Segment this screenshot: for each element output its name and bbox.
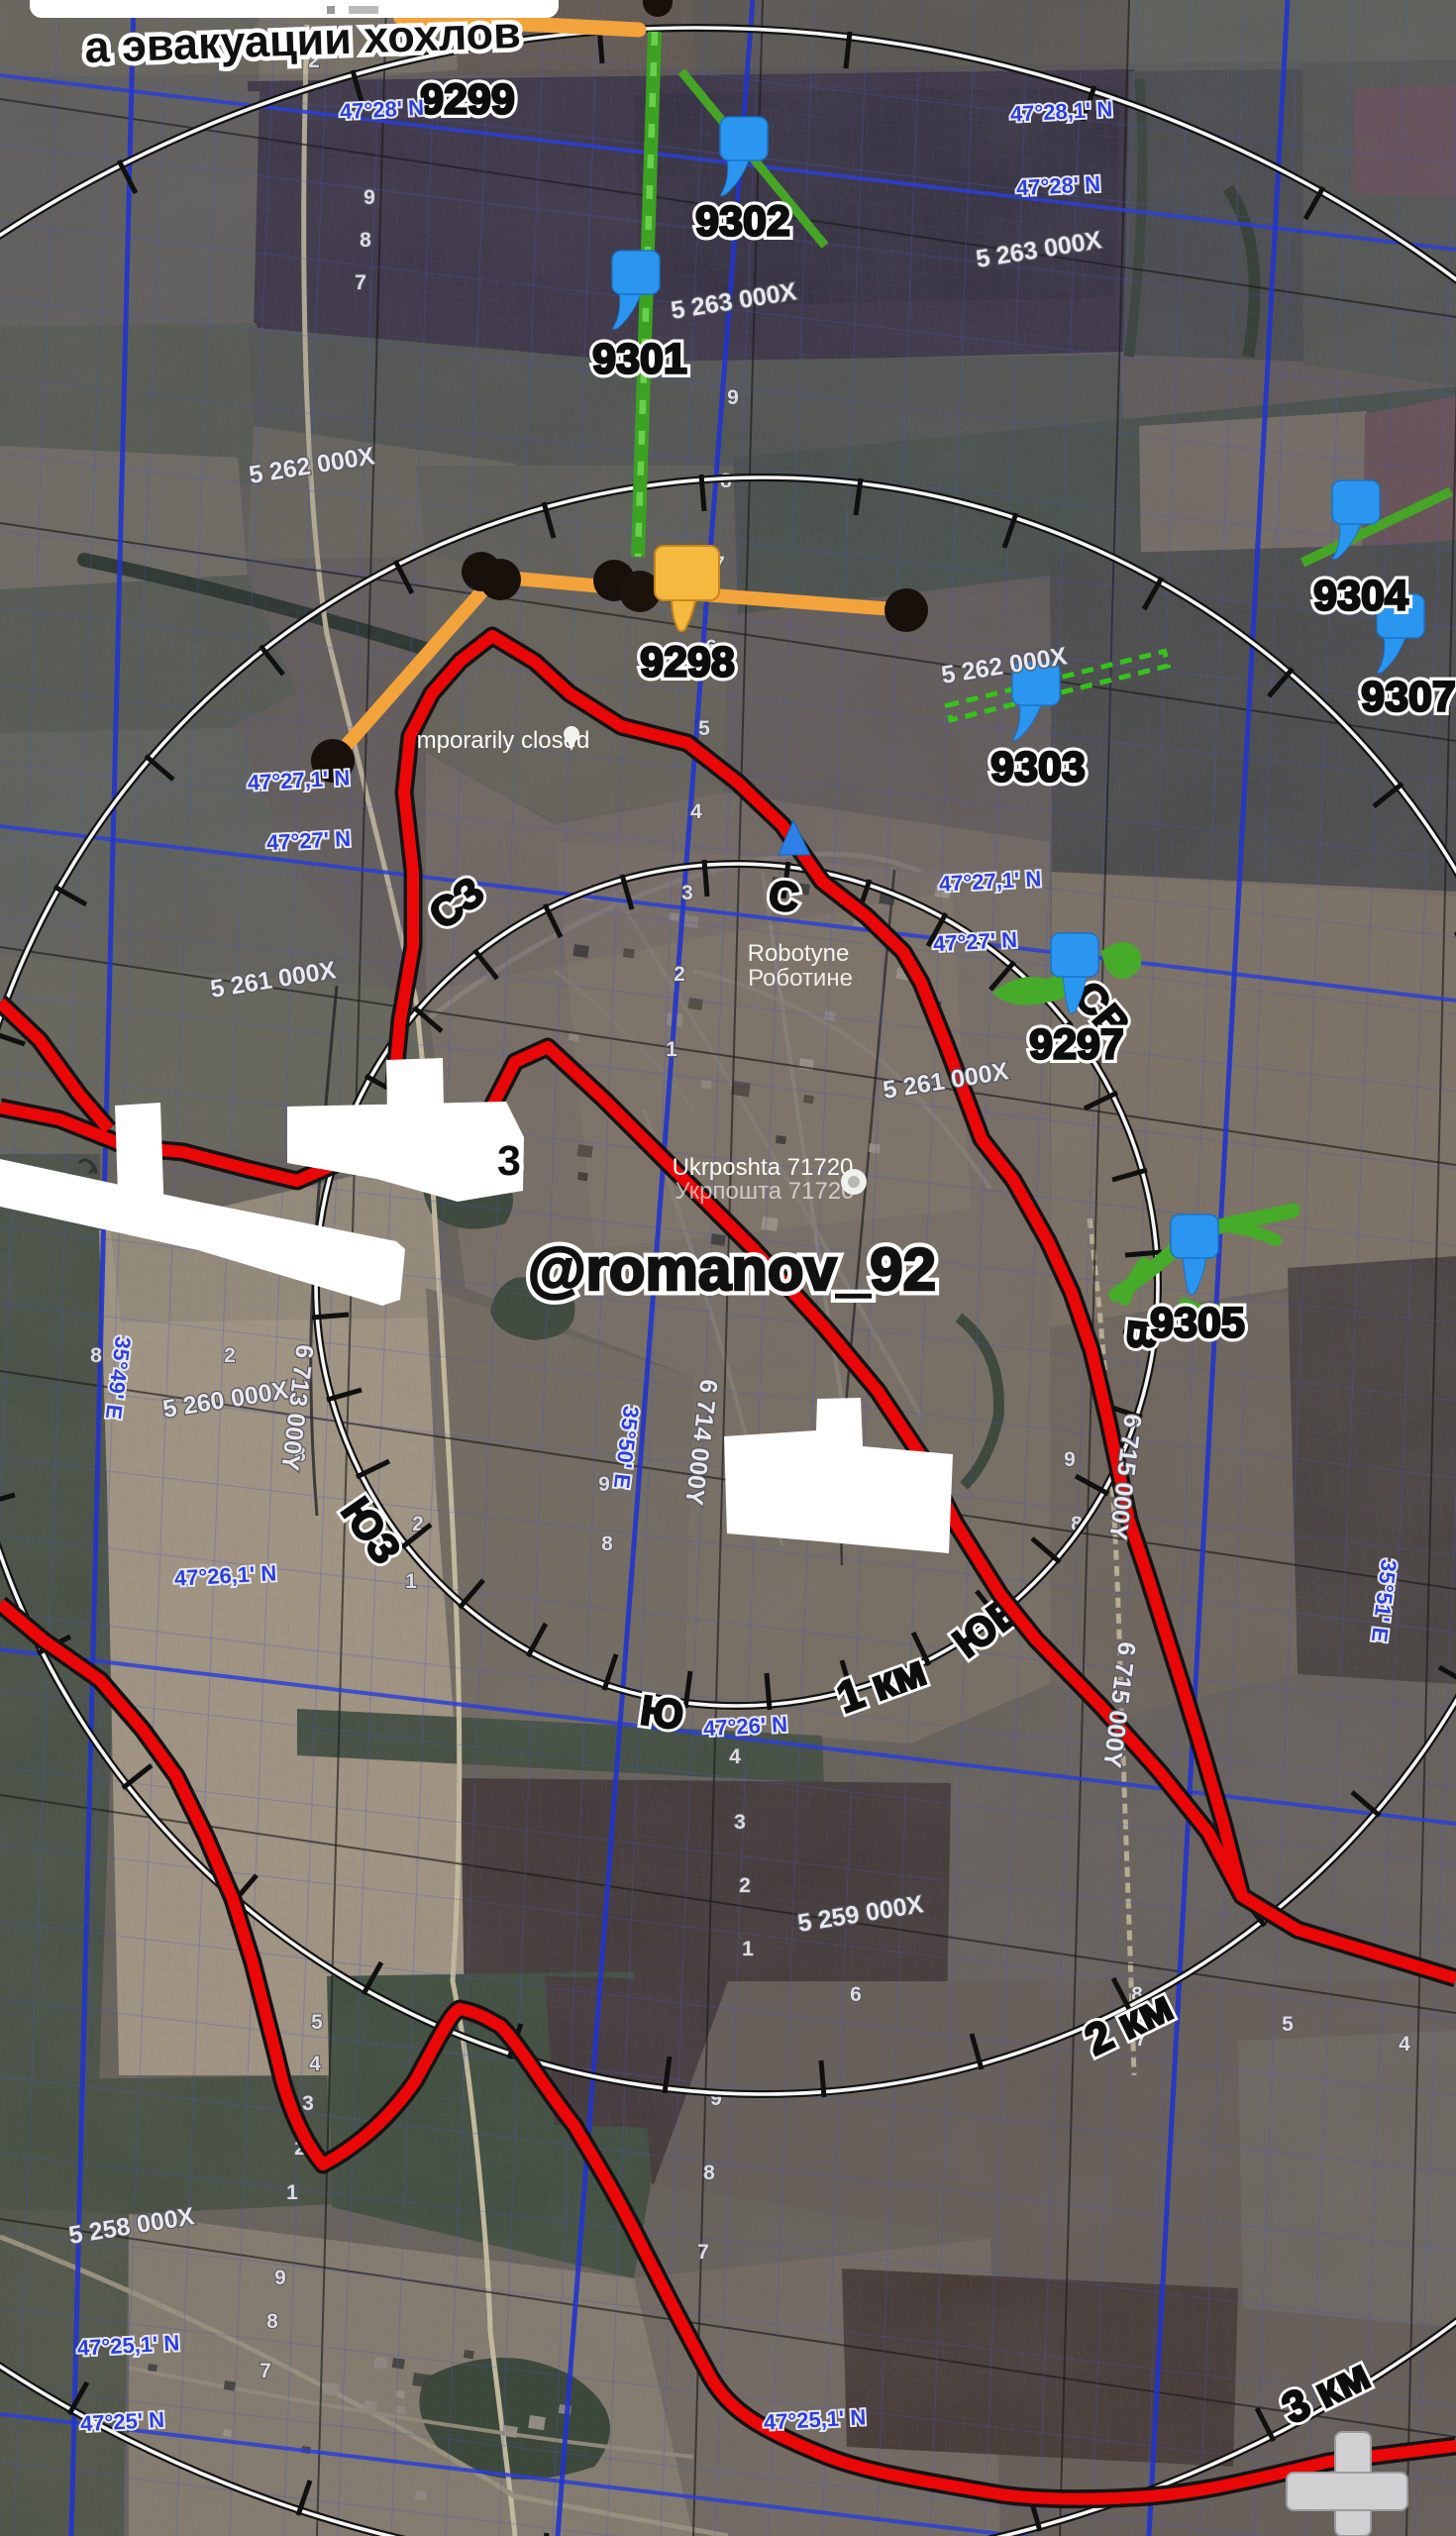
svg-text:4: 4 [690,800,702,823]
svg-text:8: 8 [90,1344,102,1367]
svg-text:2: 2 [739,1874,751,1897]
svg-text:4: 4 [309,2053,321,2075]
svg-text:Ю: Ю [638,1686,686,1739]
svg-text:9304: 9304 [1313,572,1408,619]
svg-text:9302: 9302 [695,197,790,245]
svg-text:47°28' N: 47°28' N [340,95,425,124]
svg-text:7: 7 [355,271,366,294]
svg-text:8: 8 [703,2162,715,2184]
svg-text:8: 8 [601,1532,613,1555]
svg-text:9303: 9303 [990,743,1086,791]
svg-text:9: 9 [1064,1448,1076,1471]
svg-text:9299: 9299 [420,75,515,123]
svg-text:9301: 9301 [592,335,687,382]
svg-text:Robotyne: Robotyne [748,940,850,967]
svg-text:9307: 9307 [1361,673,1456,720]
svg-text:2: 2 [674,963,685,986]
svg-text:47°26' N: 47°26' N [703,1712,788,1741]
svg-text:8: 8 [360,229,371,252]
svg-text:9297: 9297 [1029,1020,1124,1068]
svg-text:3: 3 [734,1811,746,1834]
svg-text:mporarily closed: mporarily closed [417,727,590,754]
svg-text:9305: 9305 [1150,1299,1245,1346]
svg-text:9: 9 [598,1473,610,1496]
svg-text:1: 1 [286,2181,298,2204]
svg-text:5: 5 [311,2011,323,2034]
svg-text:9298: 9298 [640,638,735,686]
svg-text:1: 1 [405,1570,417,1593]
svg-text:1: 1 [742,1938,754,1960]
svg-text:7: 7 [697,2241,709,2264]
svg-text:4: 4 [729,1745,741,1768]
svg-text:9: 9 [727,386,739,409]
svg-text:9: 9 [274,2267,286,2289]
svg-text:Роботине: Роботине [748,965,853,992]
svg-text:1: 1 [666,1038,677,1061]
svg-text:@romanov_92: @romanov_92 [528,1236,936,1303]
svg-text:5: 5 [1282,2013,1294,2036]
svg-text:Укрпошта 71720: Укрпошта 71720 [675,1178,854,1205]
svg-text:2: 2 [224,1344,236,1367]
svg-text:7: 7 [260,2360,271,2382]
svg-text:9: 9 [364,186,375,209]
svg-text:47°28' N: 47°28' N [1016,171,1101,200]
svg-text:6: 6 [850,1983,862,2006]
svg-text:5: 5 [698,717,710,740]
svg-text:С: С [766,871,801,920]
svg-text:3: 3 [302,2092,314,2115]
svg-text:8: 8 [266,2310,278,2333]
svg-text:3: 3 [497,1137,521,1185]
svg-text:47°25' N: 47°25' N [80,2407,165,2436]
svg-text:4: 4 [1399,2033,1410,2056]
svg-text:47°27' N: 47°27' N [933,927,1018,956]
svg-text:3: 3 [681,882,693,904]
svg-text:Ukrposhta 71720: Ukrposhta 71720 [673,1154,854,1181]
svg-text:47°27' N: 47°27' N [266,826,352,855]
